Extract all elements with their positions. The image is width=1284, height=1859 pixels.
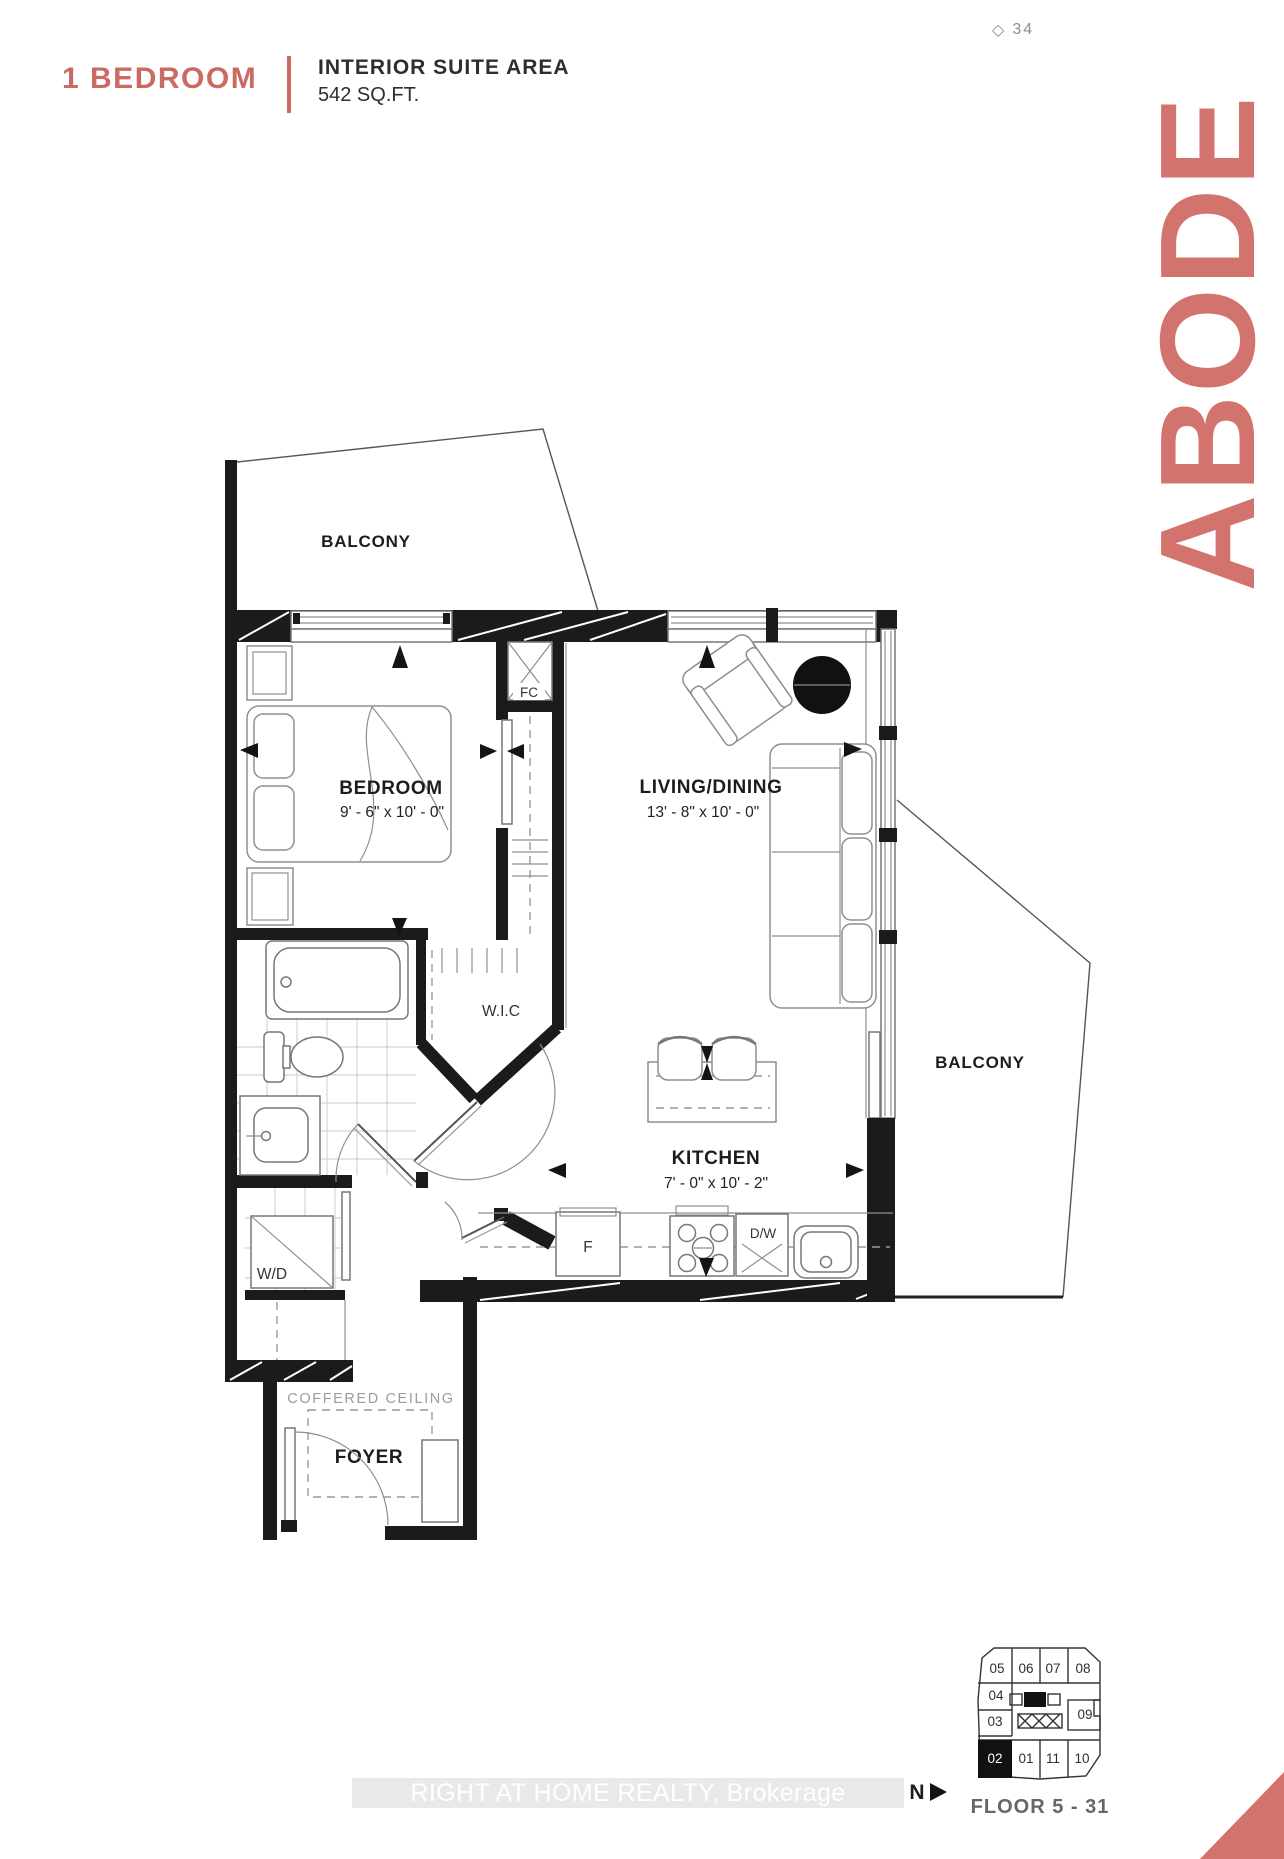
kitchen-dims: 7' - 0" x 10' - 2" — [664, 1175, 768, 1192]
wd-label: W/D — [257, 1266, 287, 1283]
bedroom-label: BEDROOM — [339, 778, 442, 799]
bedroom-dims: 9' - 6" x 10' - 0" — [340, 804, 444, 821]
arrow-right-icon — [480, 744, 497, 759]
corner-accent-triangle — [1200, 1772, 1284, 1859]
fc-closet: FC — [508, 642, 552, 700]
arrow-right-icon — [846, 1163, 864, 1178]
fridge: F — [556, 1208, 620, 1276]
entry-door — [281, 1428, 388, 1532]
keyplate-unit-label-highlighted: 02 — [987, 1751, 1002, 1766]
foyer-label: FOYER — [335, 1447, 403, 1468]
keyplate-unit-label: 09 — [1077, 1707, 1092, 1722]
sofa — [770, 744, 876, 1008]
toilet — [264, 1032, 343, 1082]
dishwasher-label: D/W — [750, 1226, 777, 1241]
living-dining-label: LIVING/DINING — [640, 777, 783, 798]
wd-closet: W/D — [245, 1188, 350, 1360]
fc-label: FC — [520, 685, 538, 700]
dining-set — [648, 1037, 776, 1122]
vanity-sink — [240, 1096, 320, 1175]
balcony-sliding-door — [869, 1032, 880, 1118]
dining-chair — [658, 1037, 702, 1080]
bathroom — [237, 941, 416, 1186]
floorplan-page: 1 BEDROOM INTERIOR SUITE AREA 542 SQ.FT.… — [0, 0, 1284, 1859]
balcony-right: BALCONY — [895, 800, 1090, 1297]
dining-chair — [712, 1037, 756, 1080]
keyplate-unit-label: 07 — [1045, 1661, 1060, 1676]
keyplate: 05 06 07 08 04 03 09 02 01 11 10 FLOOR 5… — [971, 1648, 1110, 1818]
keyplate-unit-label: 10 — [1074, 1751, 1089, 1766]
keyplate-unit-label: 01 — [1018, 1751, 1033, 1766]
arrow-up-icon — [392, 645, 408, 668]
bedroom: BEDROOM 9' - 6" x 10' - 0" — [247, 646, 512, 925]
bedroom-pocket-door — [502, 720, 512, 824]
compass: N — [909, 1781, 947, 1804]
nightstand — [247, 646, 292, 700]
bathtub — [266, 941, 408, 1019]
compass-north-label: N — [909, 1781, 924, 1804]
armchair — [679, 631, 794, 747]
bedroom-bench — [247, 868, 293, 925]
fridge-label: F — [583, 1239, 592, 1256]
keyplate-unit-label: 06 — [1018, 1661, 1033, 1676]
round-table — [793, 656, 851, 714]
brokerage-watermark: RIGHT AT HOME REALTY, Brokerage — [352, 1778, 904, 1808]
pillow — [254, 786, 294, 850]
floor-plan-drawing: BALCONY — [0, 0, 1284, 1859]
dishwasher: D/W — [736, 1214, 788, 1276]
coffered-ceiling-label: COFFERED CEILING — [287, 1391, 454, 1407]
keyplate-unit-label: 11 — [1046, 1751, 1060, 1766]
keyplate-unit-label: 08 — [1075, 1661, 1090, 1676]
pillow — [254, 714, 294, 778]
living-dining-dims: 13' - 8" x 10' - 0" — [647, 804, 760, 821]
kitchen-sink — [794, 1226, 858, 1278]
floor-range-label: FLOOR 5 - 31 — [971, 1796, 1110, 1818]
balcony-right-label: BALCONY — [935, 1053, 1025, 1072]
keyplate-unit-label: 04 — [988, 1688, 1004, 1703]
compass-arrow-icon — [930, 1783, 947, 1801]
kitchen-label: KITCHEN — [672, 1148, 761, 1169]
balcony-top-label: BALCONY — [321, 532, 411, 551]
foyer-closet — [422, 1440, 458, 1522]
keyplate-unit-label: 03 — [987, 1714, 1002, 1729]
keyplate-unit-label: 05 — [989, 1661, 1004, 1676]
wic-label: W.I.C — [482, 1003, 520, 1020]
arrow-left-icon — [548, 1163, 566, 1178]
